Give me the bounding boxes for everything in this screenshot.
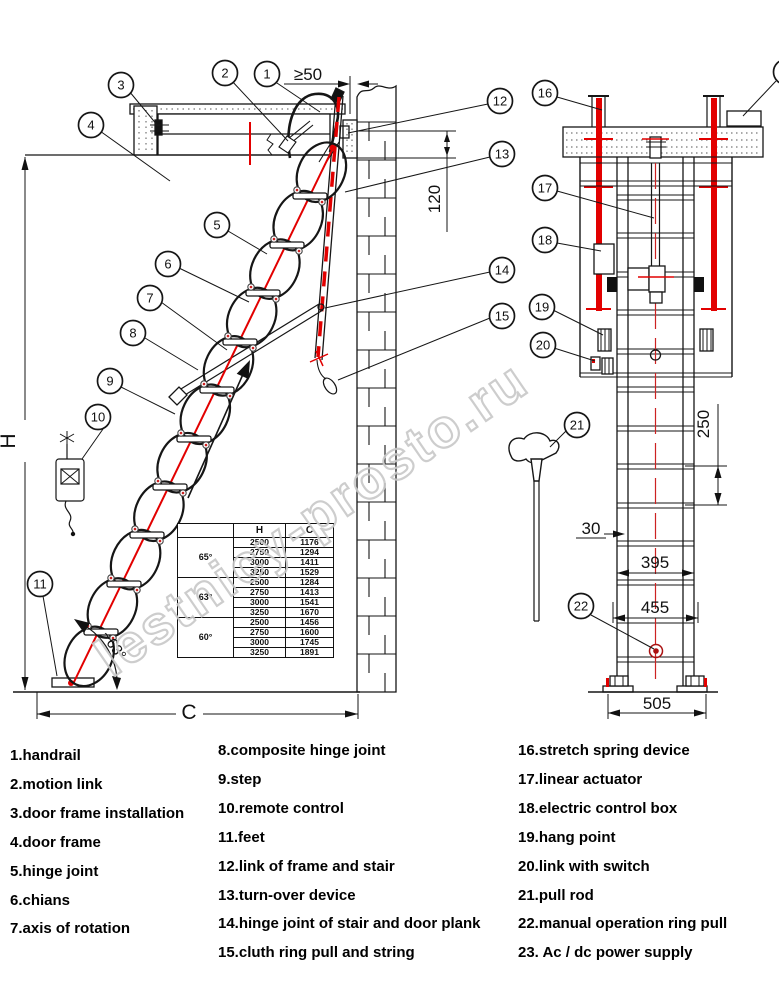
legend-item: 22.manual operation ring pull <box>518 910 727 939</box>
svg-text:20: 20 <box>536 338 550 353</box>
table-cell: 1176 <box>286 538 334 548</box>
svg-text:9: 9 <box>106 374 113 389</box>
legend-item: 8.composite hinge joint <box>218 737 481 766</box>
door-frame-assembly <box>25 104 357 165</box>
svg-text:3: 3 <box>117 78 124 93</box>
wall-bricks <box>357 86 396 692</box>
svg-text:15: 15 <box>495 309 509 324</box>
legend-item: 1.handrail <box>10 742 184 771</box>
table-cell: 3000 <box>234 558 286 568</box>
dim-505-label: 505 <box>643 694 671 713</box>
legend-column-2: 8.composite hinge joint 9.step 10.remote… <box>218 737 481 968</box>
table-cell: 1600 <box>286 628 334 638</box>
dimension-H <box>22 157 29 690</box>
legend-item: 5.hinge joint <box>10 858 184 887</box>
dimension-C <box>37 692 358 719</box>
legend-item: 18.electric control box <box>518 795 727 824</box>
svg-text:10: 10 <box>91 410 105 425</box>
table-cell: 2750 <box>234 628 286 638</box>
svg-text:17: 17 <box>538 181 552 196</box>
svg-text:4: 4 <box>87 118 94 133</box>
angle-height-width-table: H C 65° 25001176 27501294 30001411 32501… <box>177 523 334 658</box>
callout-23 <box>774 60 779 85</box>
table-cell: 1294 <box>286 548 334 558</box>
legend-column-1: 1.handrail 2.motion link 3.door frame in… <box>10 742 184 944</box>
link-with-switch <box>591 357 613 374</box>
table-angle-65: 65° <box>178 538 234 578</box>
legend-item: 9.step <box>218 766 481 795</box>
legend-item: 16.stretch spring device <box>518 737 727 766</box>
table-cell: 3000 <box>234 598 286 608</box>
svg-text:8: 8 <box>129 326 136 341</box>
table-cell: 2500 <box>234 578 286 588</box>
svg-text:5: 5 <box>213 218 220 233</box>
svg-text:2: 2 <box>221 66 228 81</box>
table-header-C: C <box>286 524 334 538</box>
dim-250-label: 250 <box>694 410 713 438</box>
legend-item: 15.cluth ring pull and string <box>218 939 481 968</box>
dim-gap-label: ≥50 <box>294 65 322 84</box>
legend-item: 14.hinge joint of stair and door plank <box>218 910 481 939</box>
table-cell: 1284 <box>286 578 334 588</box>
table-cell: 1456 <box>286 618 334 628</box>
dim-C-label: C <box>181 701 196 724</box>
legend-item: 7.axis of rotation <box>10 915 184 944</box>
legend-item: 19.hang point <box>518 824 727 853</box>
table-angle-60: 60° <box>178 618 234 658</box>
table-cell: 2750 <box>234 588 286 598</box>
legend-item: 11.feet <box>218 824 481 853</box>
table-cell: 3250 <box>234 648 286 658</box>
dim-H-label: H <box>0 433 20 448</box>
remote-control-icon <box>56 431 84 536</box>
svg-text:1: 1 <box>263 67 270 82</box>
table-cell: 1411 <box>286 558 334 568</box>
svg-text:19: 19 <box>535 300 549 315</box>
table-cell: 2500 <box>234 618 286 628</box>
table-cell: 3000 <box>234 638 286 648</box>
table-cell: 3250 <box>234 568 286 578</box>
legend-item: 23. Ac / dc power supply <box>518 939 727 968</box>
table-cell: 1745 <box>286 638 334 648</box>
legend-item: 2.motion link <box>10 771 184 800</box>
dim-120-label: 120 <box>425 185 444 213</box>
legend-item: 13.turn-over device <box>218 882 481 911</box>
svg-text:7: 7 <box>146 291 153 306</box>
table-cell: 1891 <box>286 648 334 658</box>
svg-text:12: 12 <box>493 94 507 109</box>
svg-text:6: 6 <box>164 257 171 272</box>
svg-text:18: 18 <box>538 233 552 248</box>
table-cell: 2750 <box>234 548 286 558</box>
frame-install-bolt <box>155 120 162 135</box>
legend-item: 6.chians <box>10 887 184 916</box>
legend-item: 20.link with switch <box>518 853 727 882</box>
legend-item: 10.remote control <box>218 795 481 824</box>
table-cell: 3250 <box>234 608 286 618</box>
cloth-ring-pull <box>321 376 340 396</box>
attic-ladder-technical-drawing: ≥50 120 H C ~63° 250 30 395 455 505 <box>0 0 779 985</box>
power-supply-box <box>727 111 761 126</box>
svg-text:16: 16 <box>538 86 552 101</box>
legend-item: 4.door frame <box>10 829 184 858</box>
axis-of-rotation-bar <box>169 138 339 405</box>
svg-text:22: 22 <box>574 599 588 614</box>
table-cell: 1541 <box>286 598 334 608</box>
svg-text:13: 13 <box>495 147 509 162</box>
legend-item: 12.link of frame and stair <box>218 853 481 882</box>
table-header-blank <box>178 524 234 538</box>
table-cell: 1529 <box>286 568 334 578</box>
dim-30-label: 30 <box>582 519 601 538</box>
dim-angle-label: ~63° <box>97 628 129 664</box>
table-cell: 1413 <box>286 588 334 598</box>
legend-item: 3.door frame installation <box>10 800 184 829</box>
pull-rod <box>509 433 559 621</box>
dim-395-label: 395 <box>641 553 669 572</box>
table-cell: 1670 <box>286 608 334 618</box>
table-cell: 2500 <box>234 538 286 548</box>
legend-item: 17.linear actuator <box>518 766 727 795</box>
svg-text:14: 14 <box>495 263 509 278</box>
table-angle-63: 63° <box>178 578 234 618</box>
dim-455-label: 455 <box>641 598 669 617</box>
svg-text:11: 11 <box>33 577 47 592</box>
svg-text:21: 21 <box>570 418 584 433</box>
table-header-H: H <box>234 524 286 538</box>
legend-column-3: 16.stretch spring device 17.linear actua… <box>518 737 727 968</box>
electric-control-box <box>594 244 614 274</box>
legend-item: 21.pull rod <box>518 882 727 911</box>
